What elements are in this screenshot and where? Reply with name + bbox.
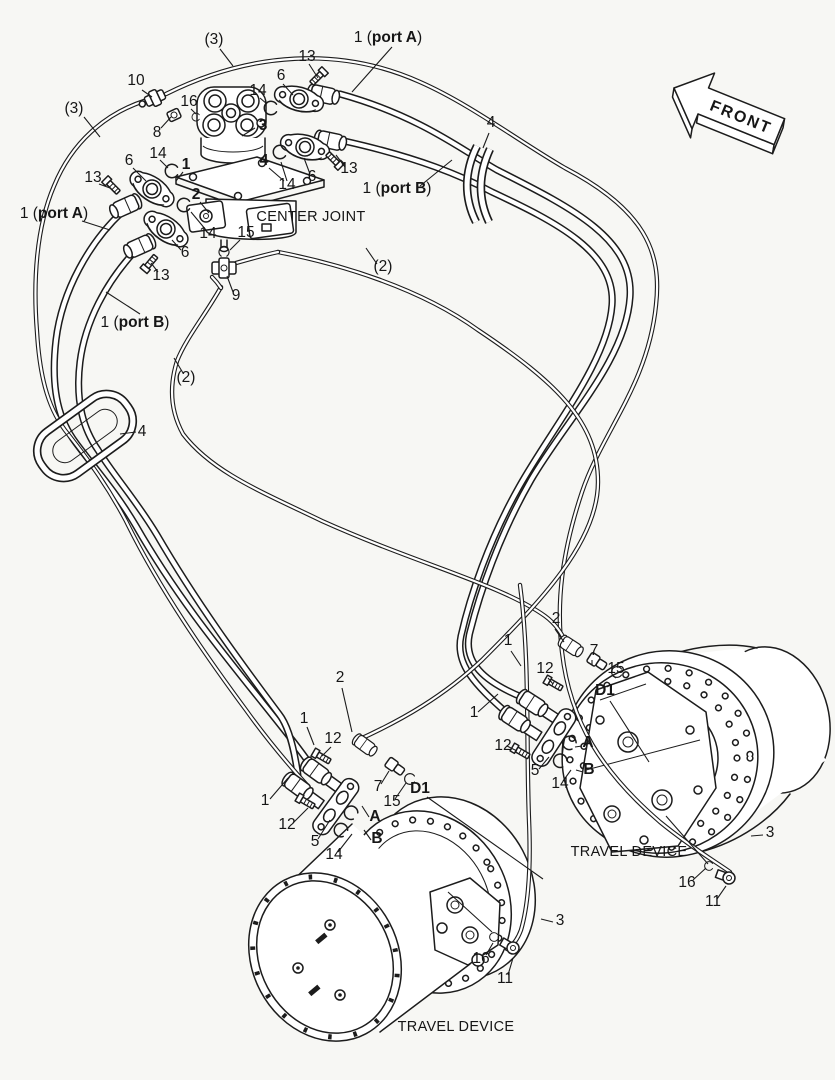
- callout-3p-left: (3): [65, 100, 84, 117]
- callout-b-btd: B: [371, 830, 382, 847]
- callout-7-btd: 7: [374, 778, 383, 795]
- callout-16-btd: 16: [472, 950, 489, 967]
- elbow-fitting-10: [136, 87, 167, 113]
- callout-11-btd: 11: [497, 970, 513, 987]
- callout-4: 4: [260, 152, 269, 169]
- callout-12-btd-b: 12: [278, 816, 295, 833]
- callout-4-clamp-right: 4: [487, 114, 496, 131]
- callout-13-b: 13: [84, 169, 101, 186]
- callout-14-rtd: 14: [551, 775, 569, 792]
- callout-6-a: 6: [277, 67, 286, 84]
- callout-14-a: 14: [249, 82, 267, 99]
- hose-clamp-left: [28, 384, 143, 487]
- callout-6-c: 6: [308, 168, 317, 185]
- port-a-label-left: 1 (port A): [20, 205, 88, 222]
- callout-2-rtd: 2: [552, 610, 561, 627]
- callout-2-btd: 2: [336, 669, 345, 686]
- travel-device-right-label: TRAVEL DEVICE: [571, 844, 688, 860]
- callout-14-b: 14: [149, 145, 167, 162]
- callout-5-rtd: 5: [531, 762, 540, 779]
- callout-15-rtd: 15: [607, 660, 624, 677]
- callout-13-a: 13: [298, 48, 315, 65]
- oring-16-right: [705, 862, 713, 871]
- port-b-label-left: 1 (port B): [101, 314, 170, 331]
- center-joint-label: CENTER JOINT: [256, 209, 365, 225]
- callout-5-btd: 5: [311, 833, 320, 850]
- callout-a-rtd: A: [582, 734, 593, 751]
- callout-9: 9: [232, 287, 241, 304]
- callout-13-c: 13: [340, 160, 357, 177]
- callout-1-rtd-b: 1: [470, 704, 479, 721]
- oring-left-top: [165, 164, 177, 177]
- callout-4-clamp-left: 4: [138, 423, 147, 440]
- travel-device-bottom-label: TRAVEL DEVICE: [398, 1019, 515, 1035]
- callout-b-rtd: B: [583, 761, 594, 778]
- port-a-label-top: 1 (port A): [354, 29, 422, 46]
- tee-fitting-9: [212, 258, 236, 278]
- callout-1-rtd-a: 1: [504, 632, 513, 649]
- callout-1-btd-a: 1: [300, 710, 309, 727]
- callout-7-rtd: 7: [590, 642, 599, 659]
- port-b-label-right: 1 (port B): [363, 180, 432, 197]
- callout-2: 2: [192, 186, 201, 203]
- hose-end-left-top: [107, 192, 143, 220]
- callout-14-btd: 14: [325, 846, 343, 863]
- callout-12-btd-a: 12: [324, 730, 341, 747]
- callout-16-rtd: 16: [678, 874, 695, 891]
- callout-1: 1: [182, 156, 191, 173]
- callout-15-btd: 15: [383, 793, 400, 810]
- callout-2p-left: (2): [177, 369, 196, 386]
- callout-6-d: 6: [181, 244, 190, 261]
- callout-a-btd: A: [369, 808, 380, 825]
- travel-device-bottom: [220, 767, 567, 1068]
- callout-1-btd-b: 1: [261, 792, 270, 809]
- callout-3p-top: (3): [205, 31, 224, 48]
- callout-10: 10: [127, 72, 145, 89]
- callout-11-rtd: 11: [705, 893, 721, 910]
- callout-12-rtd-a: 12: [536, 660, 553, 677]
- front-arrow: FRONT: [659, 61, 792, 168]
- bolt-right-top: [308, 67, 328, 87]
- callout-15-a: 15: [237, 224, 254, 241]
- callout-13-d: 13: [152, 267, 169, 284]
- callout-6-b: 6: [125, 152, 134, 169]
- diagram-canvas: FRONT (3) 13 10 6 14 16 (3) 8 3 13 6 14 …: [0, 0, 835, 1080]
- callout-12-rtd-b: 12: [494, 737, 511, 754]
- callout-16-a: 16: [180, 93, 197, 110]
- hydraulic-piping-diagram: FRONT (3) 13 10 6 14 16 (3) 8 3 13 6 14 …: [0, 0, 835, 1080]
- bolt-12-right-a: [543, 675, 564, 692]
- callout-3-btd: 3: [556, 912, 565, 929]
- callout-3-rtd: 3: [766, 824, 775, 841]
- callout-d1-btd: D1: [410, 780, 430, 797]
- callout-3: 3: [259, 117, 268, 134]
- callout-14-c: 14: [278, 176, 296, 193]
- callout-d1-rtd: D1: [595, 682, 615, 699]
- callout-2p-right: (2): [374, 258, 393, 275]
- callout-8: 8: [153, 124, 162, 141]
- callout-14-d: 14: [199, 225, 217, 242]
